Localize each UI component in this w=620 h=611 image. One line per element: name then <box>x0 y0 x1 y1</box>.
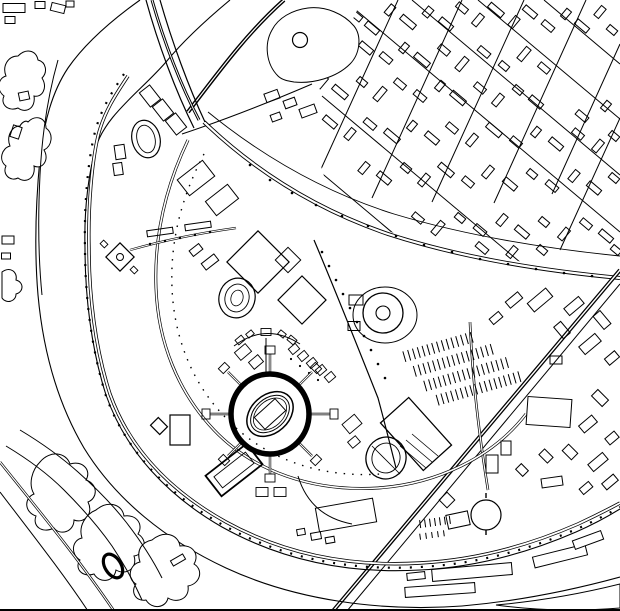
south-depot-buildings-item <box>325 536 335 543</box>
city-block-buildings-item <box>575 110 589 123</box>
city-block-buildings-item <box>522 5 537 19</box>
east-district-buildings-item <box>489 311 503 324</box>
city-block-buildings-item <box>379 52 393 65</box>
right-bank-corner-land <box>496 584 620 610</box>
north-gate-buildings-item <box>261 329 271 336</box>
stadium-radial-se-core <box>298 442 312 456</box>
oval-arena-southeast-chord <box>372 446 400 474</box>
east-district-buildings-item <box>527 288 552 312</box>
city-block-buildings-item <box>526 168 538 179</box>
tree-lined-street-dots-dot <box>328 265 331 268</box>
embankment-road-core <box>89 76 620 564</box>
monastery-buildings <box>264 89 317 122</box>
prospekt-tree-dots-dot <box>535 268 538 271</box>
prospekt-corridor <box>204 122 620 278</box>
prospekt-tree-dots-dot <box>291 192 294 195</box>
prospekt-tree-dots-dot <box>451 251 454 254</box>
east-district-buildings-item <box>526 396 572 427</box>
street-grid-diag-a2 <box>344 0 620 232</box>
corner-buildings-northwest-item <box>5 17 15 24</box>
prospekt-corridor-core <box>204 122 620 278</box>
tree-lined-street-dots-dot <box>335 279 338 282</box>
city-block-buildings-item <box>509 136 522 148</box>
inner-ring-tree-dashes <box>172 154 380 475</box>
east-district-buildings-item <box>604 351 619 365</box>
city-block-buildings-item <box>571 128 584 140</box>
sports-buildings-northwest-item <box>113 162 124 175</box>
east-district-buildings-item <box>505 292 522 308</box>
city-block-buildings-item <box>437 44 450 56</box>
city-block-buildings-item <box>506 245 518 258</box>
city-block-buildings-item <box>610 244 620 255</box>
city-block-buildings-item <box>450 90 467 106</box>
east-district-buildings-item <box>539 449 553 463</box>
tree-lined-street-dots-dot <box>342 293 345 296</box>
courts-dots-dot <box>317 379 319 381</box>
city-block-buildings-item <box>466 133 479 147</box>
east-district-buildings-item <box>605 431 619 445</box>
corner-buildings-northwest-item <box>2 236 14 244</box>
stadium-bowl-outer <box>238 382 302 445</box>
city-block-buildings-item <box>406 120 417 132</box>
city-block-buildings-item <box>496 213 508 226</box>
round-arena-hall <box>376 306 390 320</box>
city-block-buildings-item <box>548 137 563 151</box>
east-service-road <box>470 322 488 490</box>
prospekt-tree-dots-dot <box>423 244 426 247</box>
sports-buildings-northwest-item <box>205 184 238 215</box>
city-block-buildings-item <box>398 42 409 54</box>
prospekt-tree-dots-dot <box>479 258 482 261</box>
east-district-buildings-item <box>541 476 563 488</box>
east-district-buildings-item <box>516 464 529 477</box>
sports-buildings-northwest-item <box>114 144 126 159</box>
east-district-buildings-item <box>501 441 511 455</box>
courts-dots <box>290 358 319 381</box>
courts-dots-dot <box>299 365 301 367</box>
prospekt-corridor-outer <box>208 112 620 256</box>
stadium-gate-buildings-item <box>342 414 362 433</box>
oval-arena-west-track <box>222 281 253 315</box>
city-block-buildings-item <box>356 76 368 87</box>
city-block-buildings-item <box>431 220 445 235</box>
street-grid-diag-b5 <box>552 44 620 194</box>
city-block-buildings-item <box>445 122 458 134</box>
prospekt-tree-dots-dot <box>507 263 510 266</box>
quay-islands-item <box>572 531 603 550</box>
stadium-radial-nw-core <box>228 372 242 386</box>
city-block-buildings-item <box>358 161 370 174</box>
prospekt-tree-dots-dot <box>269 179 272 182</box>
northwest-track-arena <box>128 117 164 161</box>
city-block-buildings-item <box>455 56 469 71</box>
city-block-buildings-item <box>538 216 550 227</box>
embankment-road <box>89 76 620 564</box>
city-block-buildings-item <box>455 2 468 14</box>
city-block-buildings-item <box>594 5 606 18</box>
east-district-buildings-item <box>564 296 584 315</box>
city-block-buildings-item <box>492 93 505 107</box>
sports-buildings-northwest-item <box>185 221 212 231</box>
prospekt-tree-dots-dot <box>591 275 594 278</box>
city-block-buildings-item <box>424 131 439 145</box>
city-block-buildings-item <box>606 24 618 35</box>
city-block-buildings-item <box>475 242 489 255</box>
city-block-buildings-item <box>517 46 531 61</box>
oval-arena-southeast <box>361 433 411 484</box>
prospekt-tree-dots-dot <box>395 235 398 238</box>
monastery-buildings-item <box>283 97 297 109</box>
central-alley-dots-dot <box>209 231 211 233</box>
diamond-pavilion-small <box>275 247 300 272</box>
east-district-buildings <box>486 288 620 494</box>
round-arena <box>363 293 403 333</box>
plaza-kiosks-item <box>130 266 138 274</box>
corner-buildings-northwest-item <box>35 2 45 9</box>
stadium-highlight-ring <box>231 374 309 454</box>
west-sector-buildings <box>151 415 190 445</box>
map-canvas[interactable] <box>0 0 620 611</box>
city-block-buildings-item <box>384 4 396 16</box>
central-alley-dots-dot <box>149 243 151 245</box>
city-block-buildings-item <box>574 19 589 33</box>
city-block-buildings-item <box>322 115 337 129</box>
city-block-buildings-item <box>434 80 445 92</box>
east-district-buildings-item <box>588 452 608 471</box>
east-district-buildings-item <box>579 481 593 494</box>
city-block-buildings-item <box>438 162 455 178</box>
riverside-plaza-fountain <box>117 254 124 261</box>
east-district-buildings-item <box>592 390 609 407</box>
city-block-buildings-item <box>400 162 412 173</box>
stadium-gate-buildings-item <box>265 474 275 482</box>
city-block-buildings-item <box>545 180 559 193</box>
city-block-buildings-item <box>413 90 427 103</box>
left-bank-blob-west <box>2 270 22 302</box>
east-district-buildings-item <box>562 444 578 460</box>
courts-north-of-stadium-item <box>234 344 251 361</box>
central-alley-dots-dot <box>179 237 181 239</box>
diamond-pavilion-mid <box>278 276 326 324</box>
south-depot-buildings-item <box>310 532 321 541</box>
monastery-park-outline <box>267 8 359 83</box>
oval-arena-west-field <box>229 289 245 308</box>
monastery-buildings-item <box>299 104 317 118</box>
east-district-buildings-item <box>486 455 498 473</box>
east-district-buildings-item <box>579 415 598 433</box>
inner-ring-road <box>156 140 526 489</box>
tree-lined-street-dots-dot <box>370 349 373 352</box>
corner-buildings-northwest-item <box>2 253 11 259</box>
sports-buildings-northwest-item <box>139 85 160 107</box>
prospekt-tree-dots-dot <box>563 272 566 275</box>
sports-buildings-northwest-item <box>165 113 186 135</box>
east-district-buildings-item <box>579 333 602 354</box>
city-block-buildings-item <box>482 165 495 179</box>
city-block-buildings-item <box>461 176 474 188</box>
city-block-buildings-item <box>598 229 613 243</box>
city-block-buildings <box>315 2 620 259</box>
oval-arena-southeast-track <box>369 440 404 476</box>
riverside-plaza <box>106 243 134 271</box>
city-block-buildings-item <box>422 6 434 18</box>
city-block-buildings-item <box>373 86 387 101</box>
south-depot-buildings-item <box>315 498 376 532</box>
central-alley-dots-dot <box>194 234 196 236</box>
northwest-track-arena-inner <box>134 123 158 155</box>
map-view <box>0 0 620 611</box>
city-block-buildings-item <box>486 122 503 138</box>
corner-buildings-northwest-item <box>66 1 74 7</box>
courts-north-of-stadium-item <box>249 355 264 370</box>
city-block-buildings-item <box>358 41 373 55</box>
street-grid-diag-b3 <box>432 0 524 202</box>
plaza-kiosks-item <box>100 240 108 248</box>
left-bank-park-blob-north2 <box>2 118 51 181</box>
left-bank-shore-path <box>39 60 58 295</box>
quay-islands-item <box>405 583 476 598</box>
city-block-buildings-item <box>541 20 555 33</box>
west-sector-buildings-item <box>151 418 168 435</box>
gasholder-circle <box>471 500 501 530</box>
stadium-gate-buildings-item <box>310 454 321 465</box>
city-block-buildings-item <box>498 60 510 71</box>
city-block-buildings-item <box>332 84 349 100</box>
city-block-buildings-item <box>537 62 550 74</box>
south-depot-buildings-item <box>439 492 455 508</box>
city-block-buildings-item <box>502 177 517 191</box>
courts-north-of-stadium-item <box>297 350 308 361</box>
monastery-buildings-item <box>270 112 282 122</box>
prospekt-tree-dots-dot <box>367 225 370 228</box>
river-inner-bank <box>85 0 620 571</box>
city-block-buildings-item <box>592 139 605 153</box>
stadium-gate-buildings-item <box>330 409 338 419</box>
tree-lined-street-dots-dot <box>321 251 324 254</box>
city-block-buildings-item <box>363 118 377 131</box>
stadium-gate-buildings-item <box>218 362 229 373</box>
city-block-buildings-item <box>608 172 620 183</box>
south-depot-buildings-item <box>297 528 306 535</box>
stadium-radial-ne-core <box>298 372 312 386</box>
sports-buildings-northwest-item <box>201 254 219 270</box>
street-grid-diag-a1 <box>322 96 620 346</box>
central-alley-dots-dot <box>164 240 166 242</box>
city-block-buildings-item <box>472 13 485 27</box>
corner-buildings-northwest-item <box>3 4 25 13</box>
west-sector-buildings-item <box>170 415 190 445</box>
prospekt-tree-dots-dot <box>249 164 252 167</box>
city-block-buildings-item <box>579 218 592 230</box>
inner-ring-road-core <box>156 140 526 489</box>
central-alley <box>130 228 236 250</box>
city-block-buildings-item <box>393 78 406 90</box>
city-block-buildings-item <box>514 225 529 239</box>
stadium-gate-buildings-item <box>256 488 268 497</box>
city-block-buildings-item <box>560 8 571 20</box>
city-block-buildings-item <box>344 127 356 140</box>
north-gate-buildings-item <box>246 330 255 338</box>
south-bars-2 <box>420 530 445 539</box>
city-block-buildings-item <box>528 95 543 109</box>
courts-north-of-stadium-item <box>324 371 335 382</box>
parking-rows-2 <box>413 344 493 377</box>
city-block-buildings-item <box>454 212 466 223</box>
sports-buildings-northwest <box>113 85 239 270</box>
embankment-quay-ticks <box>85 74 620 568</box>
tree-lined-street-dots-dot <box>384 377 387 380</box>
city-block-buildings-item <box>586 181 601 195</box>
corner-buildings-northwest-item <box>50 2 66 13</box>
sports-buildings-northwest-item <box>189 244 203 257</box>
left-bank-park-blob-north1 <box>0 51 45 110</box>
sports-buildings-northwest-item <box>152 99 173 121</box>
prospekt-tree-dots-dot <box>315 204 318 207</box>
tree-lined-street-dots-dot <box>349 307 352 310</box>
east-district-buildings-item <box>602 474 619 490</box>
city-block-buildings-item <box>400 14 417 30</box>
sports-buildings-northwest-item <box>177 160 215 195</box>
stadium-gate-buildings-item <box>348 436 361 449</box>
city-block-buildings-item <box>473 82 486 94</box>
city-block-buildings-item <box>384 128 401 144</box>
city-block-buildings-item <box>558 227 571 241</box>
prospekt-tree-dots-dot <box>341 215 344 218</box>
city-block-buildings-item <box>568 169 580 182</box>
tree-lined-street-dots-dot <box>377 363 380 366</box>
quay-islands <box>405 531 604 598</box>
city-block-buildings-item <box>530 126 541 138</box>
tree-lined-street <box>314 240 396 468</box>
courts-north-of-stadium-item <box>288 343 299 354</box>
oval-arena-west <box>214 274 260 322</box>
courts-dots-dot <box>290 358 292 360</box>
diamond-pavilion-large <box>227 231 289 293</box>
quay-islands-item <box>407 572 426 581</box>
stadium-gate-buildings-item <box>274 488 286 497</box>
